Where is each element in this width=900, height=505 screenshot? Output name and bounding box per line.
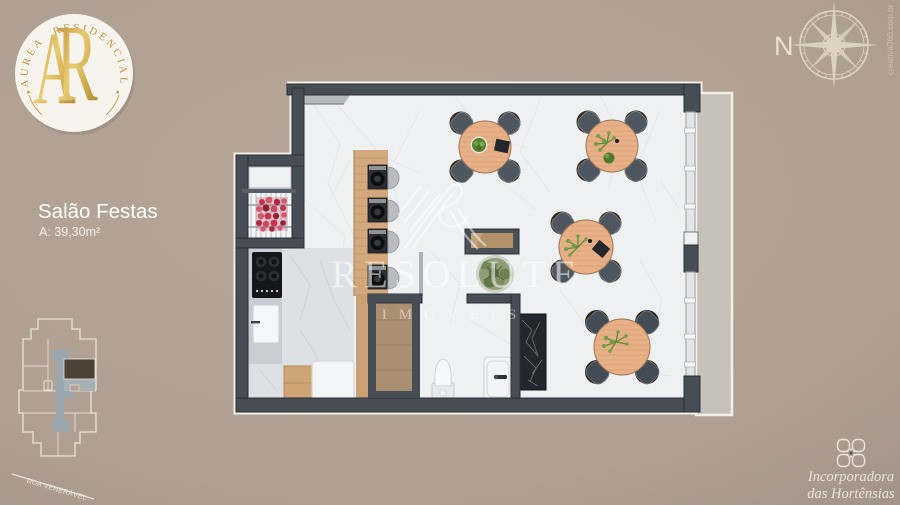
svg-text:creativa360.com.br: creativa360.com.br	[885, 4, 895, 75]
svg-text:RESOLUTE: RESOLUTE	[331, 253, 582, 296]
svg-text:R: R	[57, 4, 98, 125]
svg-text:Incorporadora: Incorporadora	[807, 469, 894, 485]
svg-text:N: N	[774, 31, 794, 61]
svg-text:A: 39,30m²: A: 39,30m²	[39, 225, 100, 239]
svg-text:das Hortênsias: das Hortênsias	[807, 486, 895, 502]
svg-text:IMÓVEIS: IMÓVEIS	[382, 306, 529, 323]
svg-text:Salão Festas: Salão Festas	[38, 200, 158, 223]
